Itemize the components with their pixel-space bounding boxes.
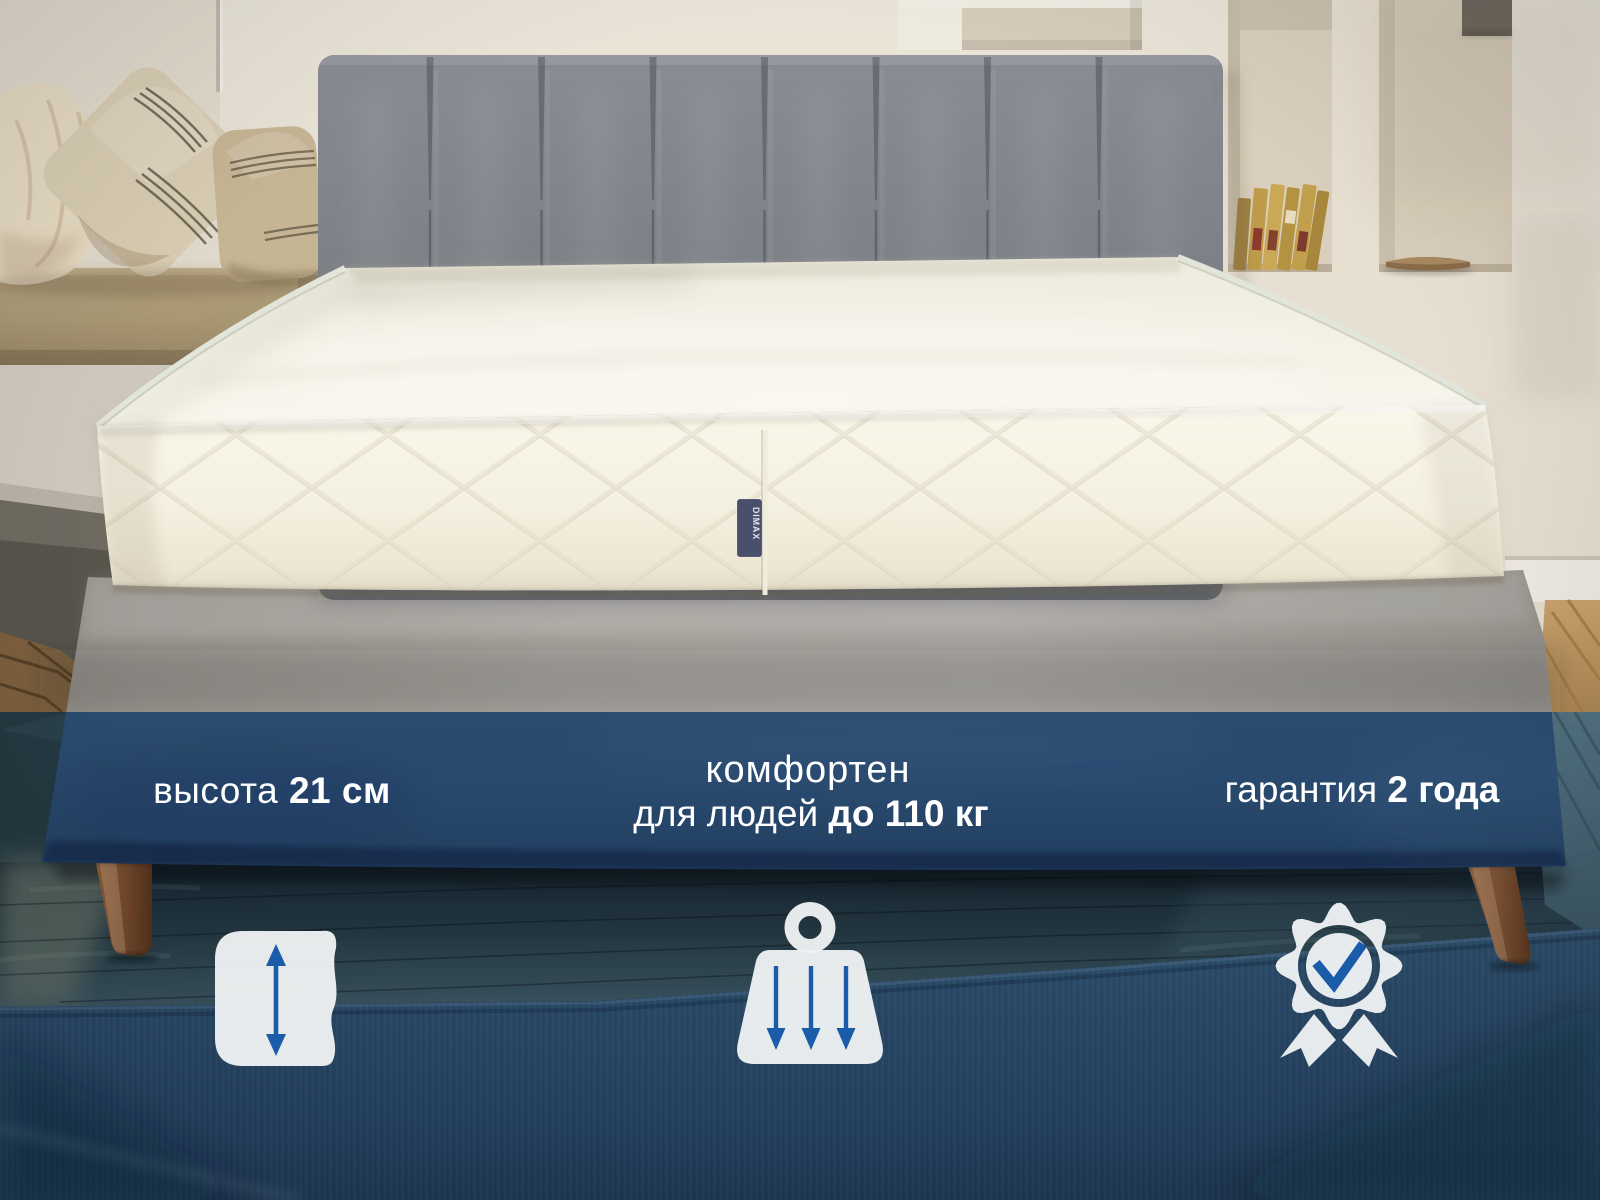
svg-text:для людей до 110 кг: для людей до 110 кг bbox=[633, 793, 988, 834]
svg-text:комфортен: комфортен bbox=[705, 749, 910, 791]
svg-text:высота 21 см: высота 21 см bbox=[153, 770, 391, 811]
svg-text:гарантия 2 года: гарантия 2 года bbox=[1225, 769, 1500, 810]
